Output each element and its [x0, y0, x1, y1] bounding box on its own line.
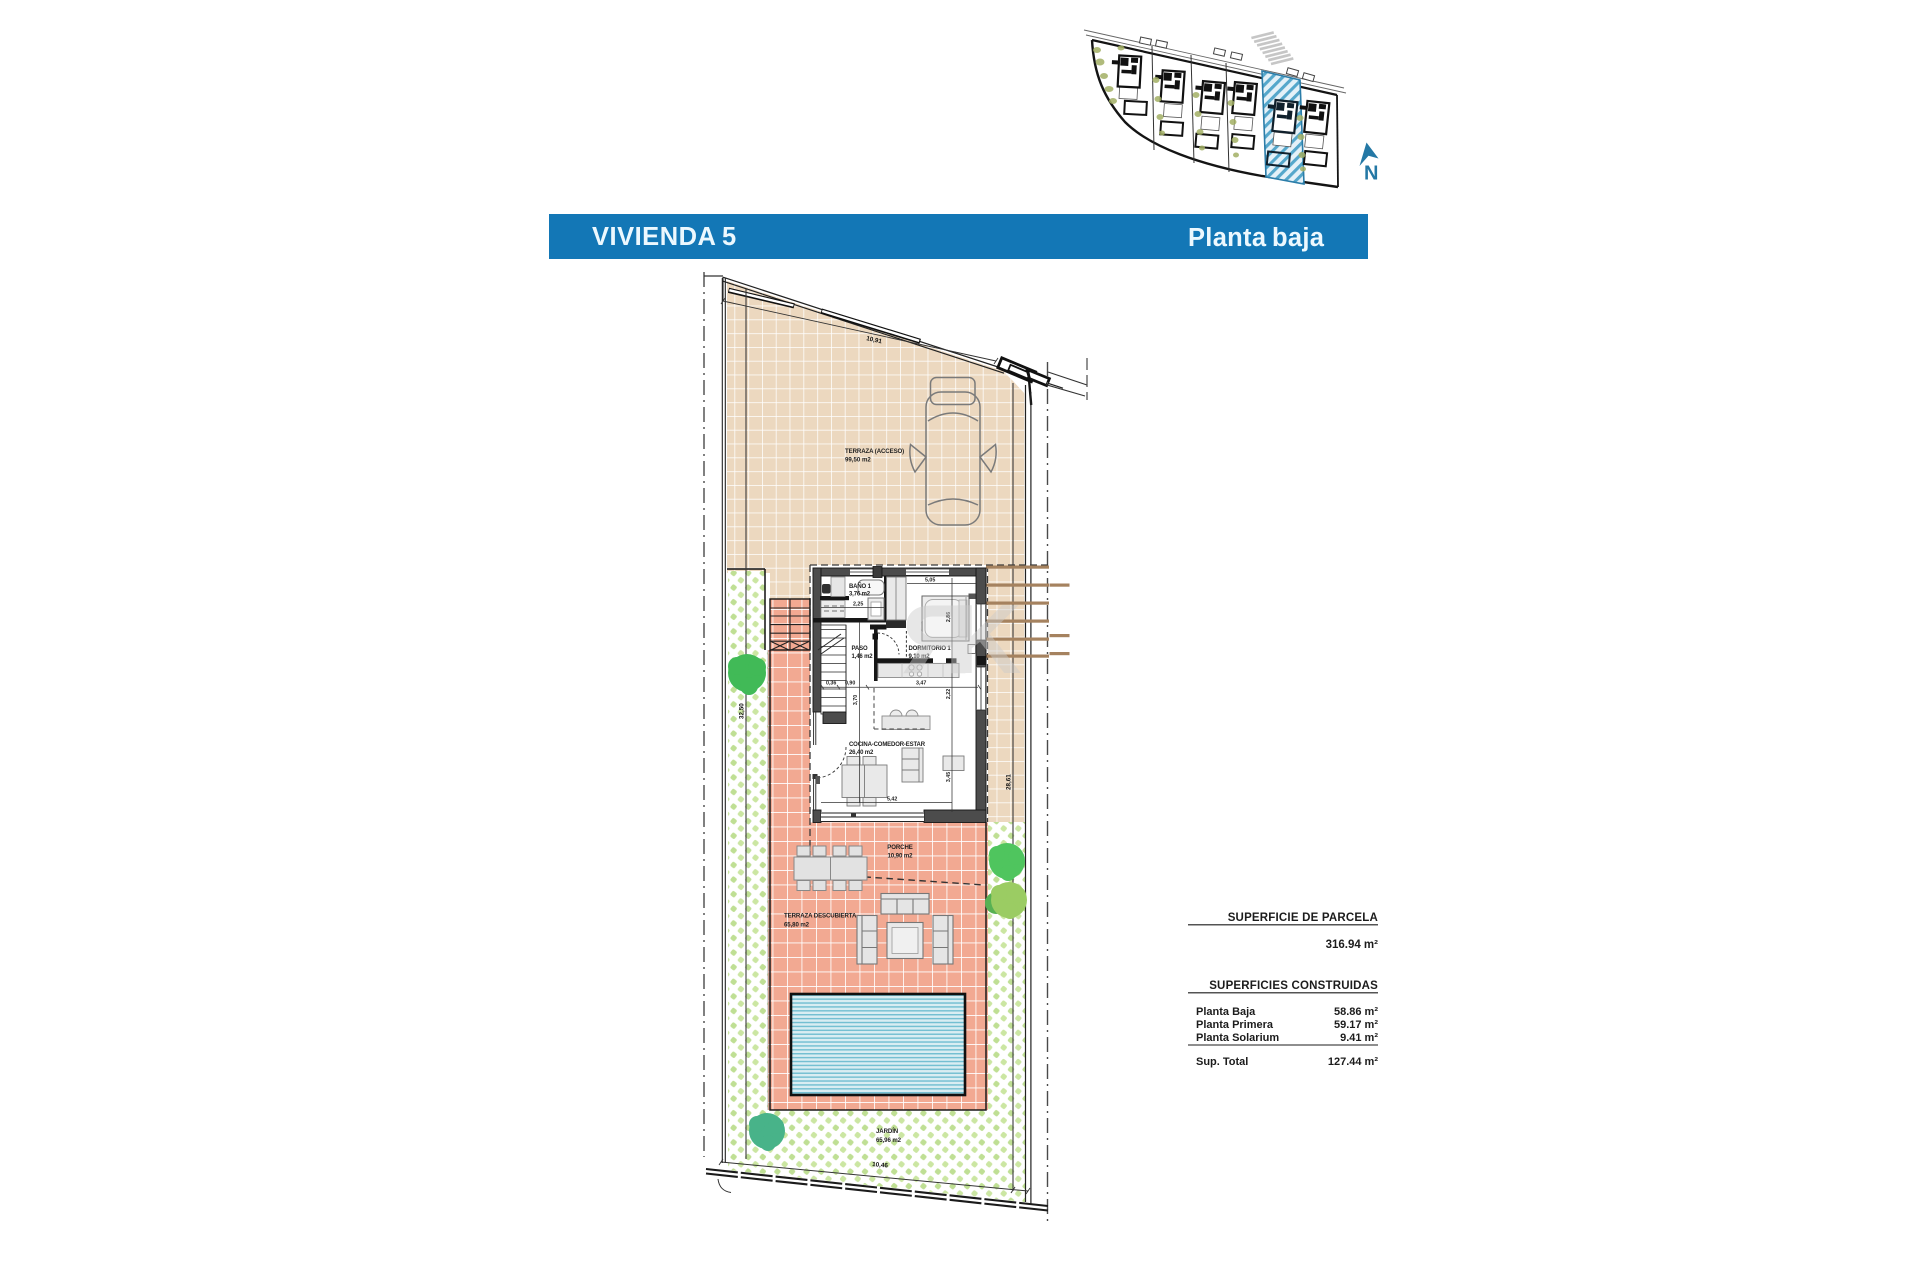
svg-text:Planta: Planta: [1188, 224, 1267, 252]
svg-text:26,40 m2: 26,40 m2: [849, 750, 874, 756]
svg-text:N: N: [1364, 163, 1378, 185]
svg-text:5,42: 5,42: [887, 797, 897, 803]
svg-text:5,05: 5,05: [925, 578, 935, 584]
svg-text:Planta Solarium: Planta Solarium: [1196, 1032, 1279, 1044]
svg-text:3,45: 3,45: [946, 772, 952, 782]
svg-text:65,96 m2: 65,96 m2: [876, 1137, 902, 1144]
svg-text:32,50: 32,50: [739, 703, 746, 719]
svg-text:2,25: 2,25: [853, 602, 863, 608]
svg-text:SUPERFICIES CONSTRUIDAS: SUPERFICIES CONSTRUIDAS: [1209, 980, 1378, 992]
svg-text:SUPERFICIE DE PARCELA: SUPERFICIE DE PARCELA: [1228, 912, 1378, 924]
svg-text:TERRAZA DESCUBIERTA: TERRAZA DESCUBIERTA: [784, 913, 857, 920]
svg-text:baja: baja: [1272, 224, 1325, 252]
svg-text:28,61: 28,61: [1006, 774, 1013, 790]
svg-text:99,50 m2: 99,50 m2: [845, 457, 871, 464]
svg-text:COCINA-COMEDOR-ESTAR: COCINA-COMEDOR-ESTAR: [849, 742, 926, 748]
svg-text:0,36: 0,36: [826, 681, 836, 687]
svg-text:3,76 m2: 3,76 m2: [849, 592, 871, 598]
svg-text:5: 5: [722, 223, 736, 251]
svg-text:10,90 m2: 10,90 m2: [888, 853, 914, 860]
svg-text:1,46 m2: 1,46 m2: [852, 654, 874, 660]
svg-text:Planta Primera: Planta Primera: [1196, 1019, 1274, 1031]
svg-text:VIVIENDA: VIVIENDA: [592, 223, 716, 251]
svg-text:58.86 m²: 58.86 m²: [1334, 1006, 1378, 1018]
svg-text:K: K: [951, 584, 1022, 694]
svg-text:JARDÍN: JARDÍN: [876, 1127, 898, 1135]
svg-text:Planta Baja: Planta Baja: [1196, 1006, 1256, 1018]
svg-text:Sup. Total: Sup. Total: [1196, 1056, 1248, 1068]
svg-text:PORCHE: PORCHE: [887, 844, 913, 851]
svg-text:9.41 m²: 9.41 m²: [1340, 1032, 1378, 1044]
svg-text:316.94 m²: 316.94 m²: [1326, 939, 1379, 951]
svg-text:65,80 m2: 65,80 m2: [784, 922, 810, 929]
svg-text:59.17 m²: 59.17 m²: [1334, 1019, 1378, 1031]
svg-text:TERRAZA (ACCESO): TERRAZA (ACCESO): [845, 448, 904, 455]
svg-text:127.44 m²: 127.44 m²: [1328, 1056, 1378, 1068]
svg-text:3,70: 3,70: [853, 695, 859, 705]
svg-text:0,90: 0,90: [845, 681, 855, 687]
svg-text:BAÑO 1: BAÑO 1: [849, 583, 872, 590]
